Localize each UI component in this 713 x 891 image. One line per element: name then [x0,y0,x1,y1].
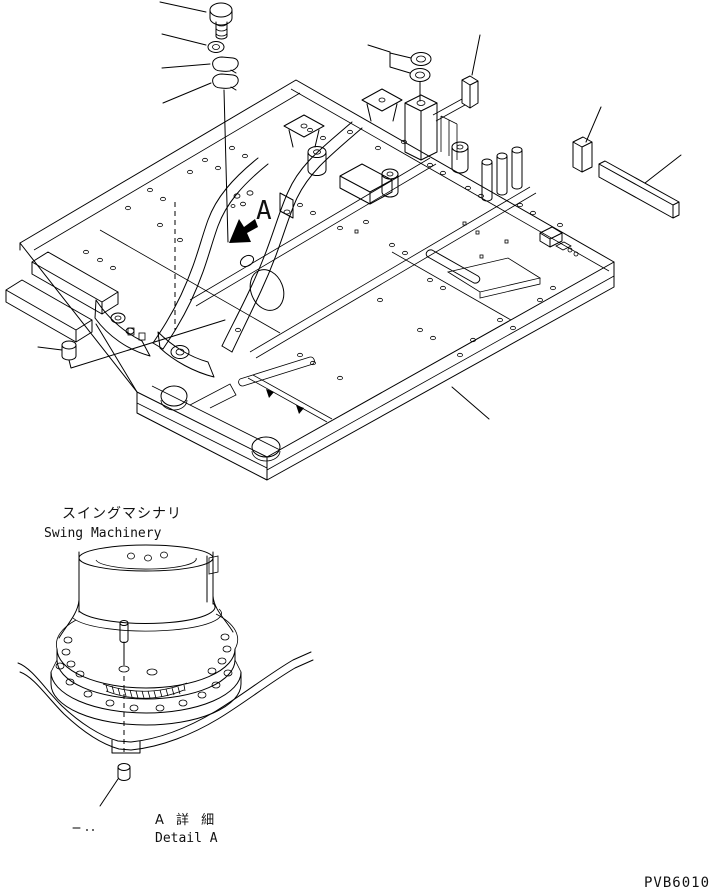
section-label: スイングマシナリ Swing Machinery [44,506,182,541]
stray-marks [73,828,94,831]
section-label-jp: スイングマシナリ [62,506,182,522]
cap-plug-lower-part [213,74,239,90]
section-label-en: Swing Machinery [44,526,162,541]
cap-plug-upper-part [213,57,239,73]
drain-plug-part [100,764,130,807]
detail-caption-jp: A 詳 細 [155,812,218,828]
detail-arrow-icon [229,219,258,243]
washer-part [208,42,224,53]
shim-block-rear-part [573,137,592,172]
leader-lines [38,2,681,419]
parts-diagram: A [0,0,713,891]
hex-bolt-part [210,3,232,39]
seal-washer-pair-parts [410,53,431,82]
main-frame-drawing [6,80,614,480]
mount-pin-part [119,621,157,676]
shim-block-front-part [462,76,478,108]
drawing-number: PVB6010 [644,875,710,891]
grease-plug-part [62,341,76,360]
flat-bar-part [599,161,679,218]
detail-marker-label: A [256,196,272,226]
detail-caption-en: Detail A [155,831,218,846]
swing-machinery-detail-drawing [18,545,313,831]
detail-caption: A 詳 細 Detail A [155,812,218,846]
